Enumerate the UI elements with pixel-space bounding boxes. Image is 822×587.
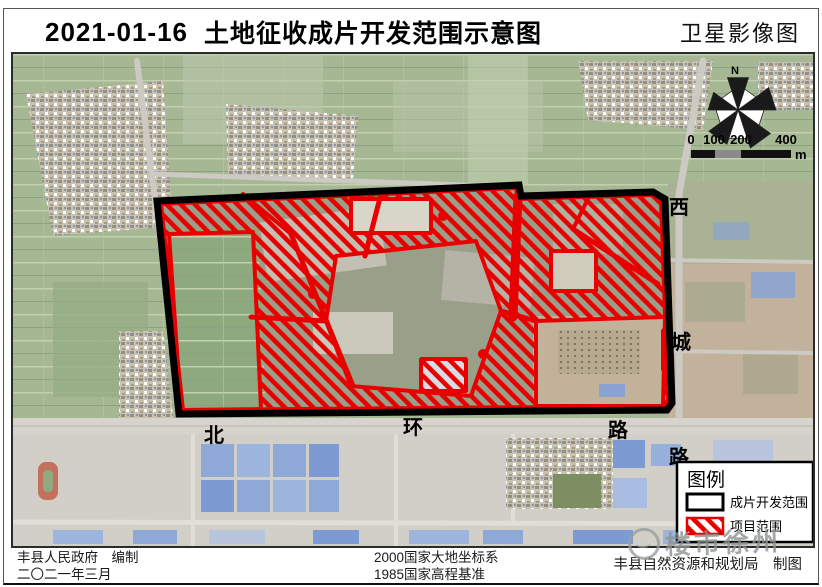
scale-tick-100: 100 — [703, 132, 725, 147]
legend-title: 图例 — [687, 469, 725, 491]
footer-publisher: 丰县人民政府 编制 — [17, 549, 139, 566]
footer-publisher-block: 丰县人民政府 编制 二〇二一年三月 — [17, 549, 139, 584]
footer-datum1: 2000国家大地坐标系 — [374, 549, 499, 566]
road-label-lu: 路 — [608, 418, 629, 442]
scale-unit: m — [795, 147, 807, 162]
footer-datum2: 1985国家高程基准 — [374, 566, 499, 583]
road-label-huan: 环 — [403, 417, 423, 439]
footer-cartographer: 丰县自然资源和规划局 制图 — [614, 553, 803, 574]
footer-credits: 丰县人民政府 编制 二〇二一年三月 2000国家大地坐标系 1985国家高程基准… — [12, 548, 810, 584]
map-type-label: 卫星影像图 — [680, 16, 800, 48]
legend-swatch-development — [687, 494, 723, 510]
road-label-cheng: 城 — [671, 330, 691, 354]
road-label-xi: 西 — [669, 197, 689, 219]
legend-label-project: 项目范围 — [730, 519, 782, 534]
map-sheet: 2021-01-16 土地征收成片开发范围示意图 卫星影像图 — [0, 0, 822, 587]
legend-box: 图例 成片开发范围 项目范围 — [677, 462, 813, 542]
legend-label-development: 成片开发范围 — [730, 495, 808, 510]
satellite-map: 北 环 路 西 城 路 N 0 100 200 400 — [13, 54, 813, 546]
legend-swatch-project — [687, 518, 723, 534]
scale-tick-200: 200 — [730, 132, 752, 147]
stadium — [38, 462, 58, 500]
green-patch — [553, 474, 601, 508]
footer-date: 二〇二一年三月 — [17, 566, 139, 583]
page-title: 土地征收成片开发范围示意图 — [204, 14, 542, 50]
scale-tick-400: 400 — [775, 132, 797, 147]
scale-tick-0: 0 — [687, 132, 694, 147]
title-date: 2021-01-16 — [45, 17, 188, 48]
compass-north-label: N — [731, 65, 739, 77]
bare-land-east — [668, 182, 813, 422]
title-bar: 2021-01-16 土地征收成片开发范围示意图 卫星影像图 — [12, 12, 810, 52]
map-canvas: 北 环 路 西 城 路 N 0 100 200 400 — [11, 52, 815, 548]
road-label-bei: 北 — [204, 424, 224, 447]
footer-datum-block: 2000国家大地坐标系 1985国家高程基准 — [374, 549, 499, 584]
